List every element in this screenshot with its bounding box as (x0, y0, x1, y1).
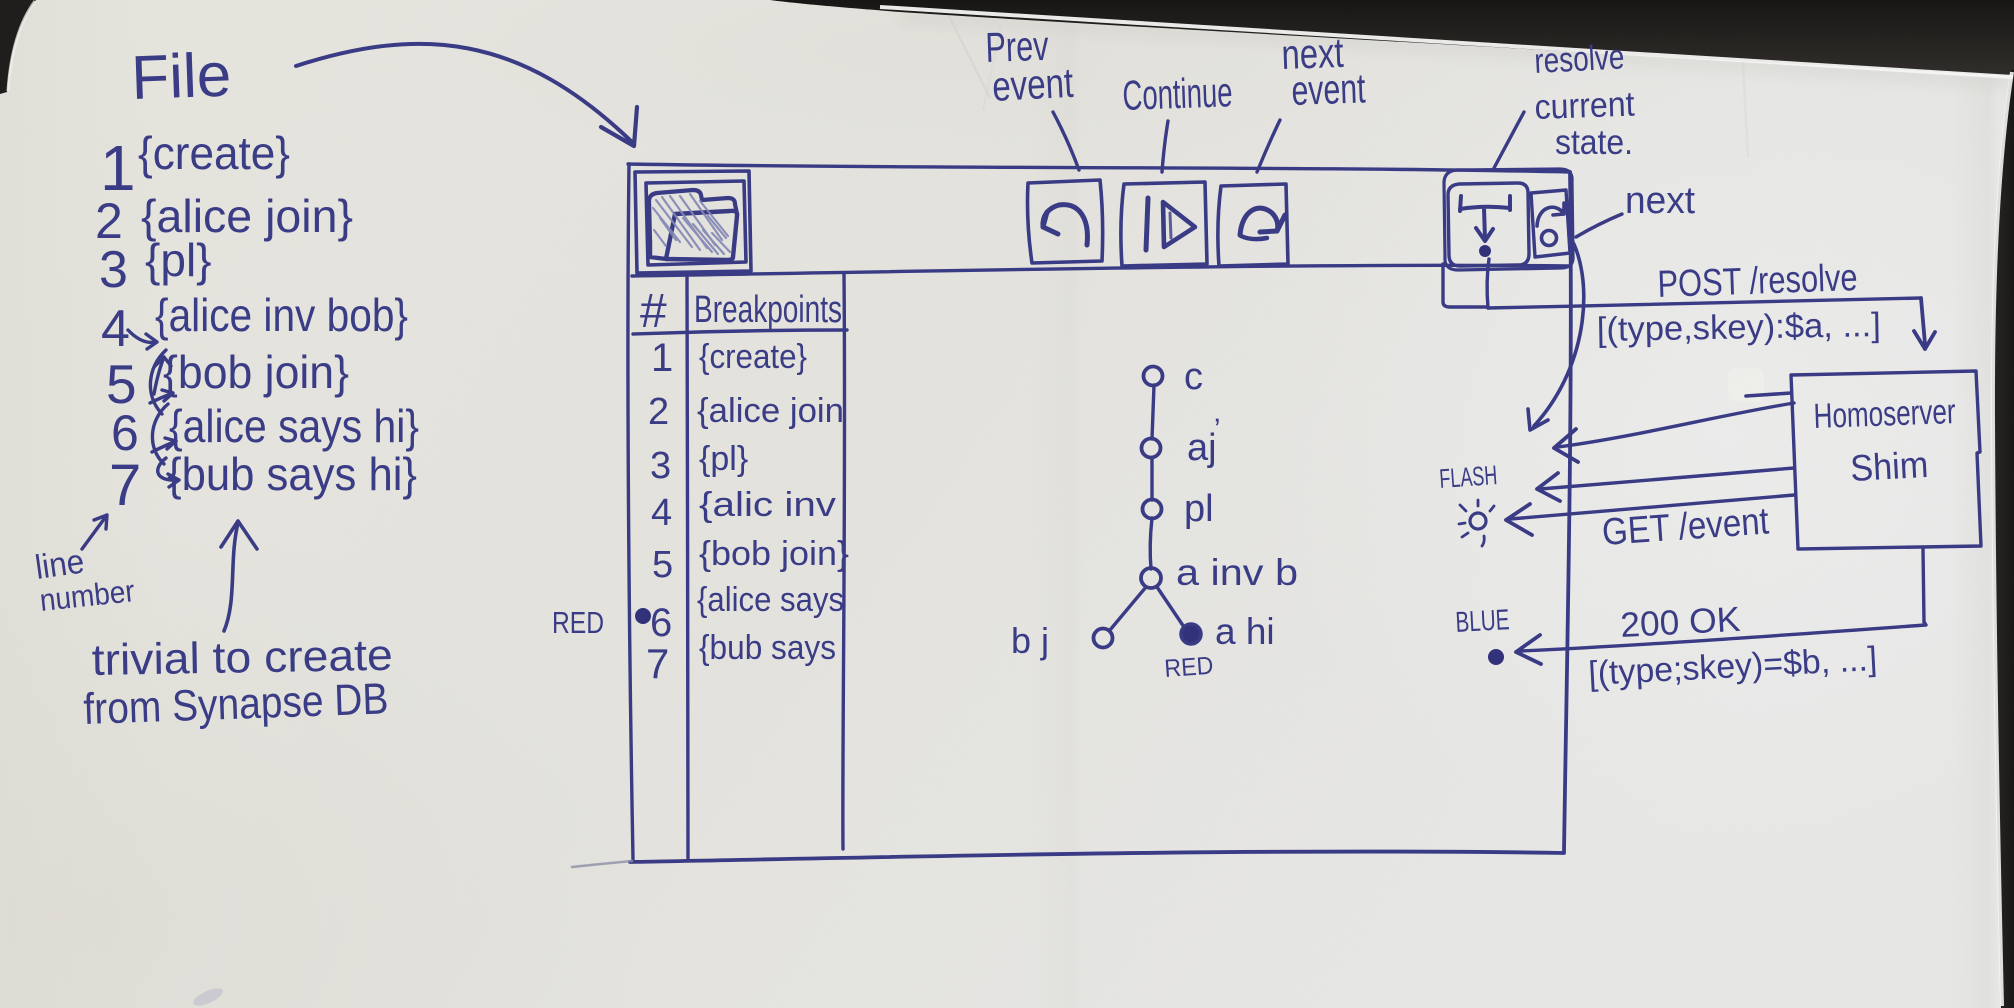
svg-text:b j: b j (1011, 620, 1049, 661)
svg-text:{bob join}: {bob join} (699, 535, 849, 573)
svg-text:FLASH: FLASH (1438, 460, 1498, 494)
svg-text:Shim: Shim (1849, 444, 1929, 489)
svg-text:resolve: resolve (1533, 37, 1625, 81)
svg-text:{bub says: {bub says (699, 629, 836, 667)
svg-text:{alice says: {alice says (697, 581, 844, 619)
svg-text:RED: RED (1163, 652, 1214, 683)
svg-text:5: 5 (652, 544, 673, 586)
svg-text:3: 3 (99, 241, 128, 299)
svg-text:1: 1 (651, 336, 673, 380)
svg-text:6: 6 (650, 601, 672, 645)
svg-text:event: event (1291, 64, 1367, 114)
svg-text:7: 7 (646, 640, 669, 687)
svg-text:Breakpoints: Breakpoints (694, 289, 842, 331)
svg-text:event: event (991, 59, 1075, 110)
svg-text:RED: RED (552, 605, 604, 640)
svg-text:{alice inv bob}: {alice inv bob} (155, 289, 408, 341)
svg-text:a hi: a hi (1215, 611, 1275, 652)
svg-text:{create}: {create} (138, 127, 290, 179)
svg-text:{alice says hi}: {alice says hi} (169, 400, 419, 452)
svg-text:Homoserver: Homoserver (1813, 392, 1957, 436)
svg-text:[(type,skey):$a, ...]: [(type,skey):$a, ...] (1596, 306, 1881, 349)
svg-text:{alice join: {alice join (697, 392, 844, 430)
svg-text:{pl}: {pl} (699, 440, 748, 478)
svg-text:a inv b: a inv b (1176, 552, 1298, 593)
svg-text:aj: aj (1187, 427, 1217, 469)
svg-text:7: 7 (109, 453, 141, 518)
svg-text:200 OK: 200 OK (1619, 600, 1741, 645)
svg-text:#: # (640, 285, 667, 338)
svg-text:state.: state. (1555, 123, 1633, 162)
svg-text:BLUE: BLUE (1455, 604, 1511, 639)
svg-text:2: 2 (648, 391, 669, 433)
svg-text:{alic inv: {alic inv (699, 486, 836, 524)
svg-text:Continue: Continue (1122, 68, 1234, 119)
svg-text:POST /resolve: POST /resolve (1657, 257, 1858, 306)
svg-text:current: current (1534, 85, 1636, 127)
svg-text:{create}: {create} (699, 338, 807, 376)
svg-text:File: File (130, 41, 232, 113)
svg-text:{bob join}: {bob join} (163, 346, 349, 398)
svg-text:ʼ: ʼ (1214, 414, 1221, 447)
svg-text:pl: pl (1184, 488, 1214, 530)
svg-text:4: 4 (101, 300, 130, 358)
svg-text:{pl}: {pl} (145, 234, 212, 286)
svg-text:3: 3 (650, 445, 671, 487)
svg-text:4: 4 (651, 492, 672, 534)
svg-text:c: c (1184, 356, 1203, 398)
svg-text:{bub says hi}: {bub says hi} (167, 448, 417, 500)
svg-text:next: next (1625, 180, 1695, 222)
